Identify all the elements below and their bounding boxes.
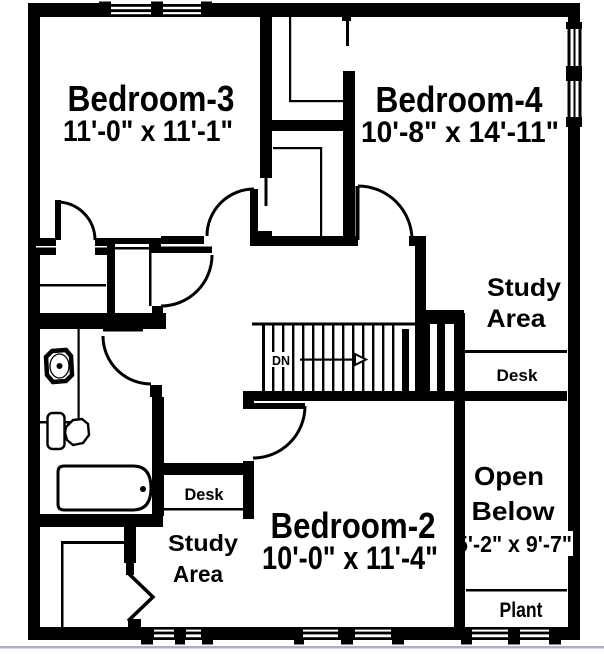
svg-text:10'-8" x 14'-11": 10'-8" x 14'-11" <box>361 116 559 149</box>
svg-text:Bedroom-3: Bedroom-3 <box>68 78 235 119</box>
svg-text:Bedroom-4: Bedroom-4 <box>376 79 543 120</box>
svg-text:Open: Open <box>474 461 544 491</box>
svg-text:Below: Below <box>472 496 556 526</box>
svg-text:Desk: Desk <box>185 485 225 504</box>
svg-text:Study: Study <box>487 274 561 302</box>
svg-text:Area: Area <box>487 305 547 333</box>
svg-text:5'-2" x 9'-7": 5'-2" x 9'-7" <box>456 531 572 557</box>
svg-text:DN: DN <box>272 353 290 368</box>
svg-text:Plant: Plant <box>500 599 543 622</box>
svg-text:Area: Area <box>173 561 223 587</box>
svg-text:Study: Study <box>168 530 238 556</box>
svg-text:10'-0" x 11'-4": 10'-0" x 11'-4" <box>262 540 438 576</box>
svg-text:Desk: Desk <box>497 366 539 385</box>
svg-text:11'-0" x 11'-1": 11'-0" x 11'-1" <box>63 115 233 148</box>
